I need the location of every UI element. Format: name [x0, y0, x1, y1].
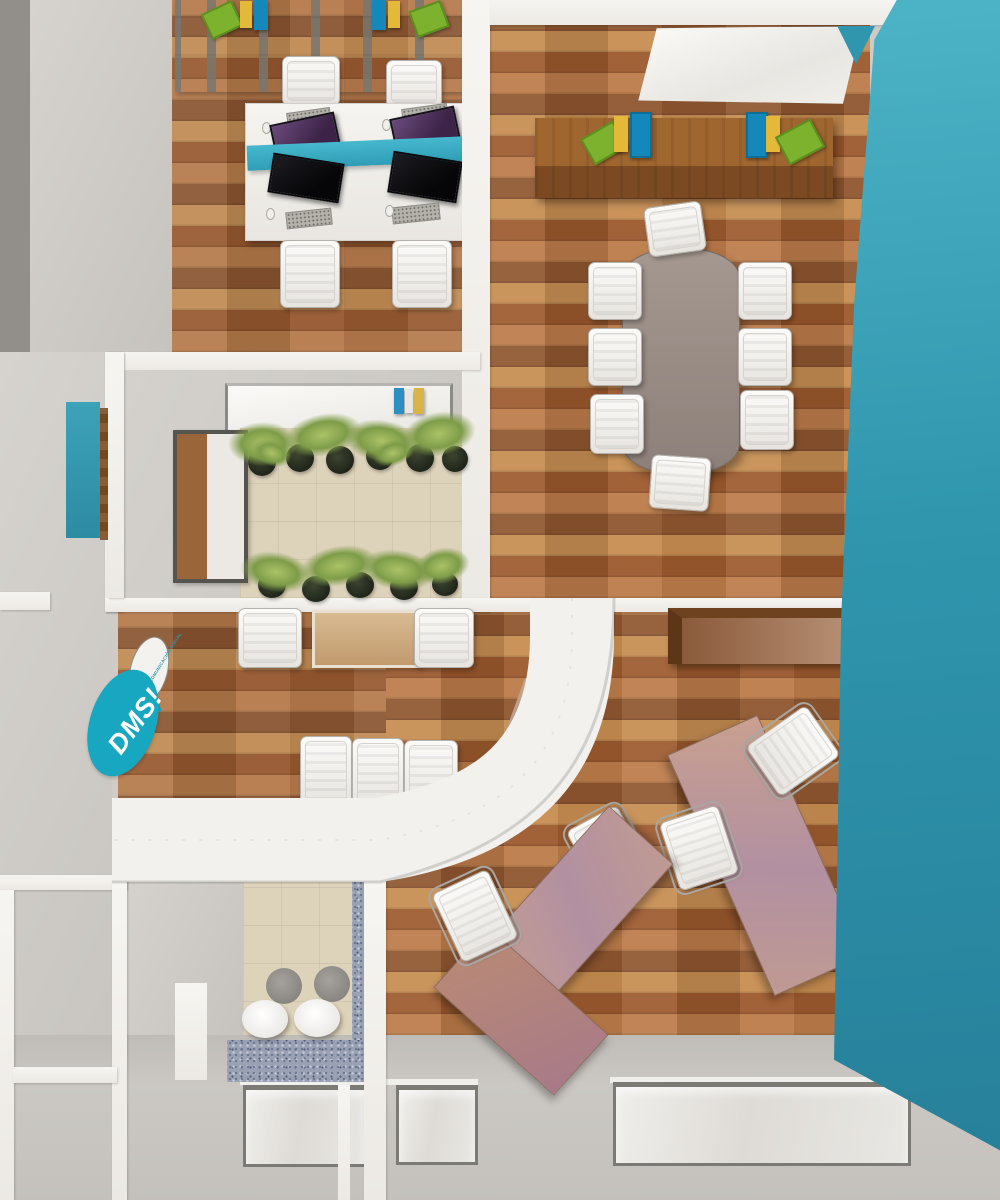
meeting-chair — [648, 454, 712, 512]
waiting-row-chair — [404, 740, 458, 810]
wall-office-meeting — [462, 0, 490, 612]
left-wing-wall-v3 — [0, 890, 14, 1200]
kitchenette-east-wall — [364, 880, 386, 1200]
left-wing-wall-h2 — [13, 1067, 117, 1083]
corridor-wall-corner — [0, 592, 50, 610]
dms-logo-wall: DISEÑO Y COMUNICACIÓN VISUAL DMS! — [84, 630, 184, 782]
stool-base — [314, 966, 350, 1002]
binder-yellow — [240, 1, 252, 28]
waiting-chair — [414, 608, 474, 668]
coffee-table — [312, 610, 420, 668]
mouse — [385, 205, 394, 217]
left-wing-wall-v2 — [112, 880, 127, 1200]
binder-yellow — [766, 116, 780, 152]
mouse — [266, 208, 275, 220]
shelf-book-white — [405, 389, 413, 413]
stool-base — [266, 968, 302, 1004]
binder-yellow — [614, 116, 628, 152]
office-floorplan-render: DISEÑO Y COMUNICACIÓN VISUAL DMS! — [0, 0, 1000, 1200]
facade-window-2 — [396, 1085, 478, 1165]
open-office-west-wall — [30, 0, 172, 352]
corridor-teal-accent — [66, 402, 100, 538]
meeting-chair — [740, 390, 794, 450]
whiteboard — [636, 25, 866, 107]
stool-seat — [294, 999, 340, 1037]
meeting-chair — [590, 394, 644, 454]
left-wing-wall-h1 — [0, 875, 127, 890]
binder-blue — [372, 0, 386, 30]
small-south-wall — [338, 1085, 350, 1200]
waiting-row-chair — [300, 736, 352, 806]
left-wing-wall-v1 — [108, 352, 124, 598]
waiting-chair — [238, 608, 302, 668]
office-chair — [386, 60, 442, 108]
garden-north-wall — [105, 352, 480, 370]
hardware-knob — [562, 672, 570, 680]
meeting-chair — [643, 200, 707, 258]
meeting-chair — [588, 262, 642, 320]
binder-blue — [254, 0, 268, 30]
office-chair — [392, 240, 452, 308]
stool-seat — [242, 1000, 288, 1038]
meeting-north-wall — [490, 0, 905, 25]
office-chair — [280, 240, 340, 308]
meeting-chair — [738, 328, 792, 386]
granite-counter-horizontal — [227, 1040, 376, 1082]
kitchenette-niche — [175, 983, 207, 1080]
hardware-knob — [560, 686, 568, 694]
meeting-chair — [588, 328, 642, 386]
logo-text: DMS! — [102, 683, 170, 760]
binder-yellow — [388, 1, 400, 28]
meeting-chair — [738, 262, 792, 320]
shelf-book-blue — [394, 388, 404, 414]
binder-blue — [746, 112, 768, 158]
facade-window-3 — [613, 1082, 911, 1166]
waiting-row-chair — [352, 738, 404, 808]
facade-window-1 — [243, 1085, 369, 1167]
binder-blue — [630, 112, 652, 158]
office-chair — [282, 56, 340, 106]
shelf-book-yellow — [414, 388, 424, 414]
